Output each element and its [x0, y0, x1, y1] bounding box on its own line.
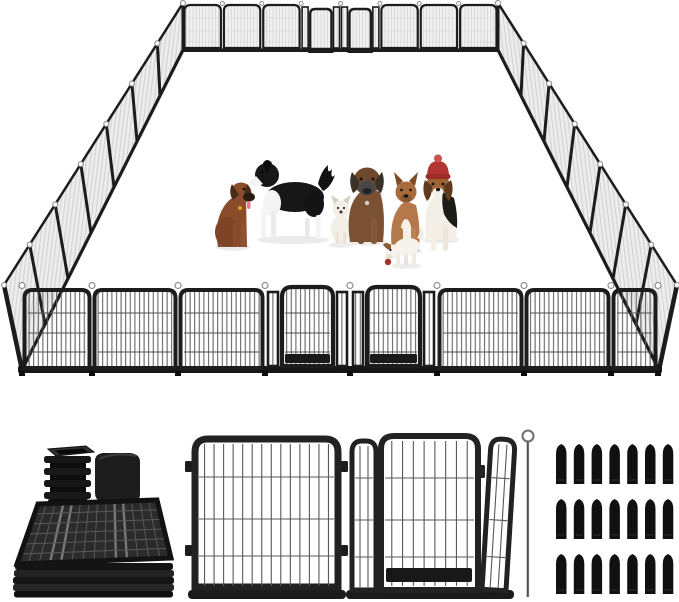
back-gate-threshold [308, 49, 333, 53]
connector-loop [27, 242, 32, 247]
connector-loop [521, 283, 527, 289]
back-gate-side [342, 7, 348, 48]
stack-layer [14, 591, 173, 598]
connector-loop [339, 2, 343, 6]
connector-loop [2, 283, 7, 288]
ground-stake [574, 444, 585, 484]
front-gate-side [268, 292, 278, 366]
connector-loop [417, 2, 421, 6]
connector-loop [572, 121, 577, 126]
stake-grid [556, 444, 673, 594]
foot [262, 371, 268, 376]
ground-stake [627, 444, 638, 484]
ground-stake [663, 554, 674, 594]
back-panel [185, 5, 221, 48]
product-image [0, 0, 679, 602]
connector-loop [608, 283, 614, 289]
back-gate-side [302, 7, 308, 48]
connector-loop [181, 1, 186, 6]
gate-threshold [386, 568, 472, 582]
ground-stake [556, 444, 567, 484]
connector-loop [655, 283, 661, 289]
panel-tab [185, 545, 192, 556]
ground-stake [592, 499, 603, 539]
ground-stake [645, 554, 656, 594]
front-panel [440, 290, 522, 368]
dogs-group [215, 155, 459, 269]
connector-loop [155, 41, 160, 46]
connector-loop [347, 283, 353, 289]
ground-stake [609, 554, 620, 594]
stack-layer [13, 584, 174, 591]
connector-loop [378, 2, 382, 6]
ground-stake [663, 499, 674, 539]
panel-tab [341, 461, 348, 472]
end-caps [44, 446, 140, 503]
folded-panel-stack [13, 500, 174, 598]
foot [89, 371, 95, 376]
front-wall [18, 283, 662, 377]
connector-loop [53, 202, 58, 207]
foot [608, 371, 614, 376]
dog-beagle-red-hat [423, 155, 459, 252]
ground-stake [574, 554, 585, 594]
dog-tongue [247, 201, 251, 209]
gate-door-frame [381, 436, 478, 590]
dog-brown-mastiff-sitting [347, 168, 387, 246]
front-gate-side [337, 292, 347, 366]
foot [434, 371, 440, 376]
connector-loop [547, 81, 552, 86]
connector-loop [19, 283, 25, 289]
ground-stake [663, 444, 674, 484]
back-panel [224, 5, 260, 48]
panel-tab [185, 461, 192, 472]
connector-loop [623, 202, 628, 207]
ground-stake [645, 499, 656, 539]
front-panel [181, 290, 263, 368]
connector-loop [175, 283, 181, 289]
connector-loop [649, 242, 654, 247]
connector-loop [598, 162, 603, 167]
back-gate-side [334, 7, 340, 48]
ground-stake [574, 499, 585, 539]
panel-frame [195, 439, 338, 587]
connector-loop [262, 283, 268, 289]
front-gate-threshold [285, 354, 330, 363]
ground-stake [592, 554, 603, 594]
connector-loop [104, 121, 109, 126]
foot [347, 371, 353, 376]
gate-left-strip [352, 441, 376, 590]
rod-loop [523, 431, 534, 442]
back-panel [263, 5, 299, 48]
gate-latch [476, 465, 485, 478]
ground-stake [592, 444, 603, 484]
back-panel [381, 5, 417, 48]
ground-stake [627, 554, 638, 594]
connector-loop [521, 41, 526, 46]
back-gate-door [350, 9, 371, 49]
ground-rod [523, 431, 534, 598]
back-gate-threshold [348, 49, 373, 53]
connector-loop [260, 2, 264, 6]
front-panel [25, 290, 90, 368]
front-panel [614, 290, 656, 368]
gate-panel [346, 436, 515, 599]
playpen-illustration [0, 0, 679, 602]
ground-stake [627, 499, 638, 539]
front-gate-threshold [370, 354, 417, 363]
back-gate-door [310, 9, 331, 49]
foot [655, 371, 661, 376]
dog-tag [365, 201, 369, 205]
ground-stake [556, 554, 567, 594]
dog-brown-sitting [215, 183, 255, 251]
back-panel [421, 5, 457, 48]
ground-stake [556, 499, 567, 539]
ground-stake [609, 444, 620, 484]
hat-pom [434, 155, 442, 163]
foot [521, 371, 527, 376]
stack-layer [14, 570, 174, 577]
back-wall [181, 2, 500, 54]
gate-hinge [375, 539, 383, 550]
panel-base-bar [188, 590, 346, 599]
foot [19, 371, 25, 376]
dog-tail [318, 165, 335, 191]
dog-tag [238, 206, 242, 210]
front-gate-side [353, 292, 363, 366]
back-panel [460, 5, 496, 48]
hat-band [426, 174, 451, 179]
back-gate-side [373, 7, 379, 48]
connector-loop [675, 283, 679, 288]
end-cap-smooth [95, 453, 140, 502]
dog-black-white-standing [249, 160, 335, 244]
front-panel [95, 290, 176, 368]
front-gate-side [424, 292, 434, 366]
end-cap-ribbed-stack [44, 446, 94, 503]
gate-right-strip [482, 439, 515, 591]
ground-stake [645, 444, 656, 484]
connector-loop [496, 1, 501, 6]
connector-loop [457, 2, 461, 6]
ground-stake [609, 499, 620, 539]
dog-toy [385, 259, 391, 265]
stack-layer [15, 563, 173, 570]
connector-loop [299, 2, 303, 6]
front-panel [527, 290, 609, 368]
playpen-enclosure [2, 1, 679, 377]
panel-tab [341, 545, 348, 556]
gate-hinge [375, 469, 383, 480]
connector-loop [434, 283, 440, 289]
connector-loop [129, 81, 134, 86]
connector-loop [220, 2, 224, 6]
single-panel [185, 439, 348, 599]
connector-loop [89, 283, 95, 289]
foot [175, 371, 181, 376]
stack-layer [13, 577, 174, 584]
connector-loop [78, 162, 83, 167]
